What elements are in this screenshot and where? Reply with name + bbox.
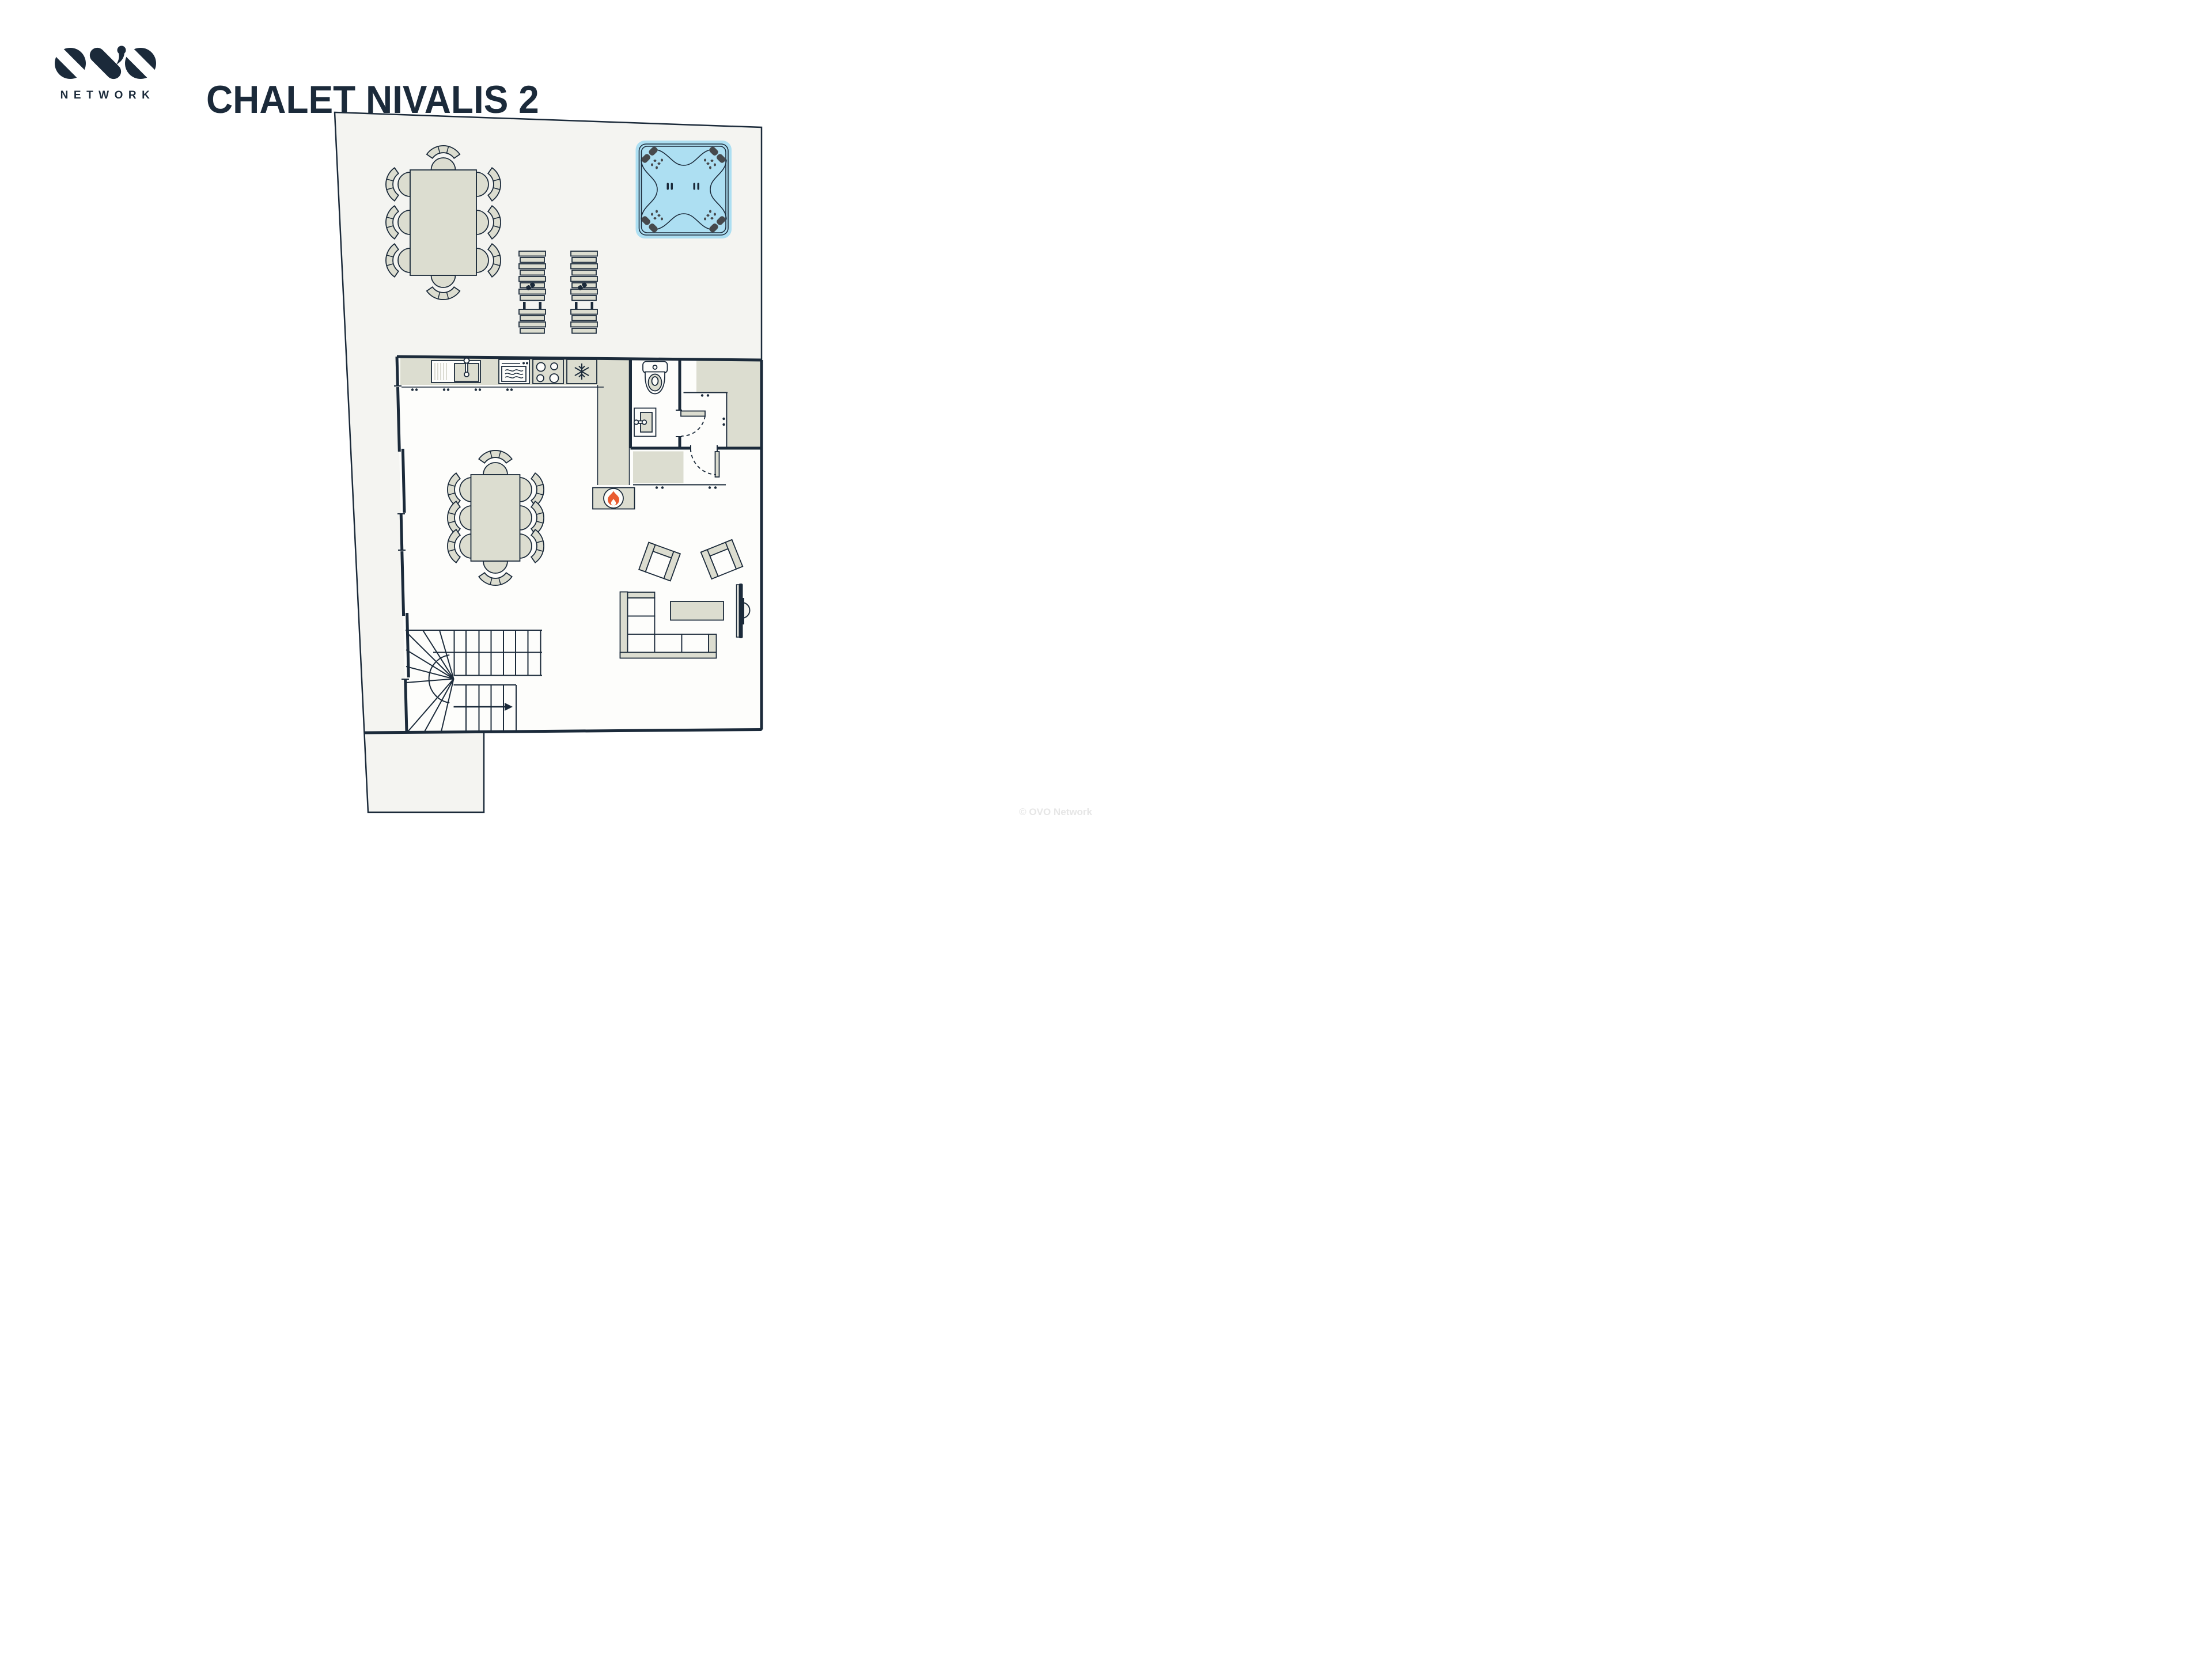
dining-chair	[386, 168, 410, 200]
dining-chair	[386, 244, 410, 276]
dining-chair	[427, 146, 460, 170]
floorplan-page: NETWORK CHALET NIVALIS 2	[0, 0, 1106, 829]
dining-chair	[427, 275, 460, 300]
dining-chair	[448, 473, 472, 506]
fireplace	[593, 488, 635, 509]
coffee-table	[671, 601, 724, 620]
freezer-icon	[567, 359, 597, 384]
hot-tub	[636, 141, 732, 238]
dining-chair	[520, 501, 544, 534]
dining-chair	[476, 206, 501, 238]
kitchen-sink-icon	[431, 358, 480, 383]
dining-chair	[520, 473, 544, 506]
dining-chair	[479, 450, 512, 475]
hob-icon	[533, 359, 563, 384]
sun-lounger	[571, 251, 597, 334]
dining-chair	[448, 529, 472, 562]
dining-chair	[520, 529, 544, 562]
oven-icon	[499, 359, 529, 384]
sun-lounger	[519, 251, 546, 334]
bathroom-sink-icon	[634, 408, 656, 437]
dining-chair	[476, 168, 501, 200]
floorplan-drawing	[0, 0, 1106, 829]
dining-chair	[479, 561, 512, 585]
dining-chair	[386, 206, 410, 238]
dining-chair	[476, 244, 501, 276]
dining-chair	[448, 501, 472, 534]
copyright-watermark: © OVO Network	[1019, 806, 1092, 818]
